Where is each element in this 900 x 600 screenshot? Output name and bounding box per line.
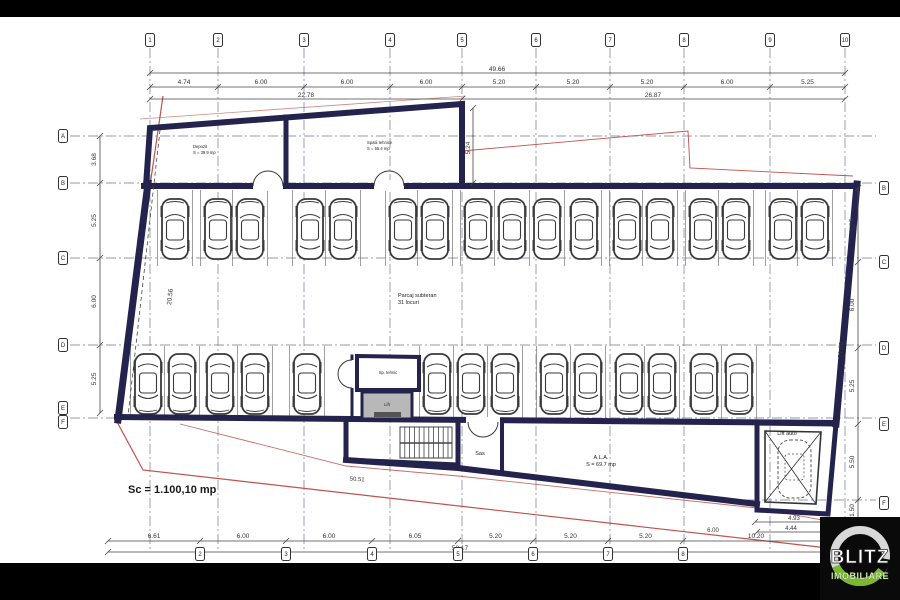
car-bottom-row <box>648 354 677 414</box>
grid-bubble: 6 <box>532 34 541 47</box>
grid-bubble-label: C <box>61 256 66 262</box>
car-top-row <box>570 199 599 259</box>
dim-segment-label: 6.00 <box>237 533 250 540</box>
car-top-row <box>236 199 265 259</box>
logo-text-main: BLITZ <box>831 547 890 568</box>
car-bottom-row <box>168 354 197 414</box>
label-spatii-tehnice: Spatii tehnice <box>367 140 393 145</box>
floorplan-page: Depozit S = 39.9 mp Spatii tehnice S = 5… <box>0 0 900 600</box>
grid-bubble: E <box>880 418 889 431</box>
grid-bubble: 5 <box>458 34 467 47</box>
car-top-row <box>296 199 325 259</box>
dim-segment-label: 5.50 <box>849 455 856 468</box>
dim-slope-length: 50.51 <box>349 476 365 483</box>
label-parcaj: Parcaj subteran <box>398 293 437 299</box>
grid-bubble-label: A <box>61 134 65 140</box>
dim-segment-label: 5.25 <box>91 372 98 385</box>
label-spatii-tehnice-area: S = 55.4 mp <box>367 146 390 151</box>
car-top-row <box>769 199 798 259</box>
dim-lift-auto-outer: 4.93 <box>788 516 800 522</box>
dim-top-sub-right: 26.87 <box>645 92 662 99</box>
dim-segment-label: 5.20 <box>493 79 506 86</box>
dim-lift-auto-inner: 4.44 <box>785 526 797 532</box>
grid-bubble: 10 <box>841 34 850 47</box>
grid-bubble-label: F <box>61 420 65 426</box>
dim-segment-label: 5.25 <box>801 79 814 86</box>
car-top-row <box>498 199 527 259</box>
dim-segment-label: 5.20 <box>639 533 652 540</box>
dim-segment-label: 6.61 <box>148 533 161 540</box>
dim-segment-label: 6.00 <box>721 79 734 86</box>
car-bottom-row <box>241 354 270 414</box>
car-bottom-row <box>457 354 486 414</box>
grid-bubble: 7 <box>606 34 615 47</box>
dim-segment-label: 6.00 <box>849 298 856 311</box>
label-ala: A.L.A. <box>594 455 609 461</box>
car-top-row <box>722 199 751 259</box>
lift-sill <box>374 412 401 417</box>
grid-bubble: 4 <box>386 34 395 47</box>
dim-segment-label: 6.00 <box>91 295 98 308</box>
grid-bubble: B <box>59 177 68 190</box>
dim-ramp-width: 6.00 <box>707 528 719 534</box>
floorplan-drawing: Depozit S = 39.9 mp Spatii tehnice S = 5… <box>0 0 900 600</box>
car-top-row <box>613 199 642 259</box>
dim-segment-label: 10.20 <box>748 533 765 540</box>
grid-bubble: 6 <box>529 548 538 561</box>
car-top-row <box>801 199 830 259</box>
car-bottom-row <box>725 354 754 414</box>
car-bottom-row <box>293 354 322 414</box>
grid-bubble: 7 <box>604 548 613 561</box>
grid-bubble: F <box>59 416 68 429</box>
grid-bubble-label: D <box>61 343 66 349</box>
grid-bubble: A <box>59 130 68 143</box>
dim-right-wall: 21.60 <box>837 341 845 358</box>
dim-segment-label: 6.05 <box>409 533 422 540</box>
grid-bubble-label: F <box>882 501 886 507</box>
top-letterbox-bar <box>0 0 900 17</box>
dim-segment-label: 5.20 <box>489 533 502 540</box>
dim-segment-label: 6.00 <box>420 79 433 86</box>
grid-bubble: 9 <box>766 34 775 47</box>
car-top-row <box>204 199 233 259</box>
grid-bubble: 8 <box>680 34 689 47</box>
car-top-row <box>464 199 493 259</box>
grid-bubble-label: E <box>61 406 65 412</box>
car-top-row <box>421 199 450 259</box>
grid-bubble-label: B <box>61 181 65 187</box>
grid-bubble: 1 <box>146 34 155 47</box>
car-top-row <box>329 199 358 259</box>
car-top-row <box>533 199 562 259</box>
grid-bubble-label: B <box>882 186 886 192</box>
grid-bubble: C <box>59 252 68 265</box>
car-top-row <box>389 199 418 259</box>
grid-bubble: 5 <box>454 548 463 561</box>
dim-segment-label: 5.25 <box>849 218 856 231</box>
grid-bubble-label: 10 <box>842 38 849 44</box>
dim-segment-label: 5.25 <box>91 214 98 227</box>
grid-bubble: B <box>880 182 889 195</box>
grid-bubble-label: D <box>882 346 887 352</box>
car-bottom-row <box>690 354 719 414</box>
car-bottom-row <box>134 354 163 414</box>
dim-segment-label: 5.20 <box>641 79 654 86</box>
label-ala-area: S = 69.7 mp <box>586 462 616 468</box>
blitz-imobiliare-logo: BLITZ IMOBILIARE <box>820 517 900 600</box>
car-top-row <box>646 199 675 259</box>
grid-bubble: C <box>880 256 889 269</box>
car-top-row <box>689 199 718 259</box>
car-bottom-row <box>540 354 569 414</box>
dim-segment-label: 1.50 <box>849 504 856 517</box>
grid-bubble: 2 <box>214 34 223 47</box>
label-depozit: Depozit <box>193 144 208 149</box>
label-parcaj-capacity: 31 locuri <box>398 300 419 306</box>
grid-bubble: 3 <box>282 548 291 561</box>
grid-bubble: F <box>880 497 889 510</box>
dim-segment-label: 4.74 <box>178 79 191 86</box>
dim-segment-label: 3.68 <box>91 153 98 166</box>
grid-bubble: D <box>880 342 889 355</box>
dim-segment-label: 6.00 <box>323 533 336 540</box>
label-depozit-area: S = 39.9 mp <box>193 150 216 155</box>
grid-bubble-label: E <box>882 422 886 428</box>
grid-bubble: D <box>59 339 68 352</box>
label-lift-auto: Lift auto <box>777 431 797 437</box>
grid-bubble: 3 <box>300 34 309 47</box>
car-top-row <box>161 199 190 259</box>
car-bottom-row <box>491 354 520 414</box>
label-lift: Lift <box>384 402 390 407</box>
grid-bubble: E <box>59 402 68 415</box>
grid-bubble: 4 <box>368 548 377 561</box>
label-sp-tehnic: Sp. tehnic <box>379 370 398 375</box>
logo-text-sub: IMOBILIARE <box>831 571 889 581</box>
dim-top-sub-left: 22.78 <box>298 92 315 99</box>
label-sas: Sas <box>475 451 485 457</box>
bottom-letterbox-bar <box>0 563 900 600</box>
car-bottom-row <box>574 354 603 414</box>
dim-segment-label: 5.25 <box>849 379 856 392</box>
dim-segment-label: 6.00 <box>255 79 268 86</box>
grid-bubble: 2 <box>196 548 205 561</box>
dim-segment-label: 5.20 <box>564 533 577 540</box>
car-bottom-row <box>423 354 452 414</box>
dim-segment-label: 5.20 <box>567 79 580 86</box>
dim-segment-label: 6.00 <box>341 79 354 86</box>
grid-bubble-label: C <box>882 260 887 266</box>
dim-rooms-depth: 5.24 <box>465 141 472 154</box>
dim-top-total: 49.66 <box>489 66 506 73</box>
car-bottom-row <box>615 354 644 414</box>
grid-bubble: 8 <box>679 548 688 561</box>
car-bottom-row <box>206 354 235 414</box>
label-scale-note: Sc = 1.100,10 mp <box>128 484 217 496</box>
